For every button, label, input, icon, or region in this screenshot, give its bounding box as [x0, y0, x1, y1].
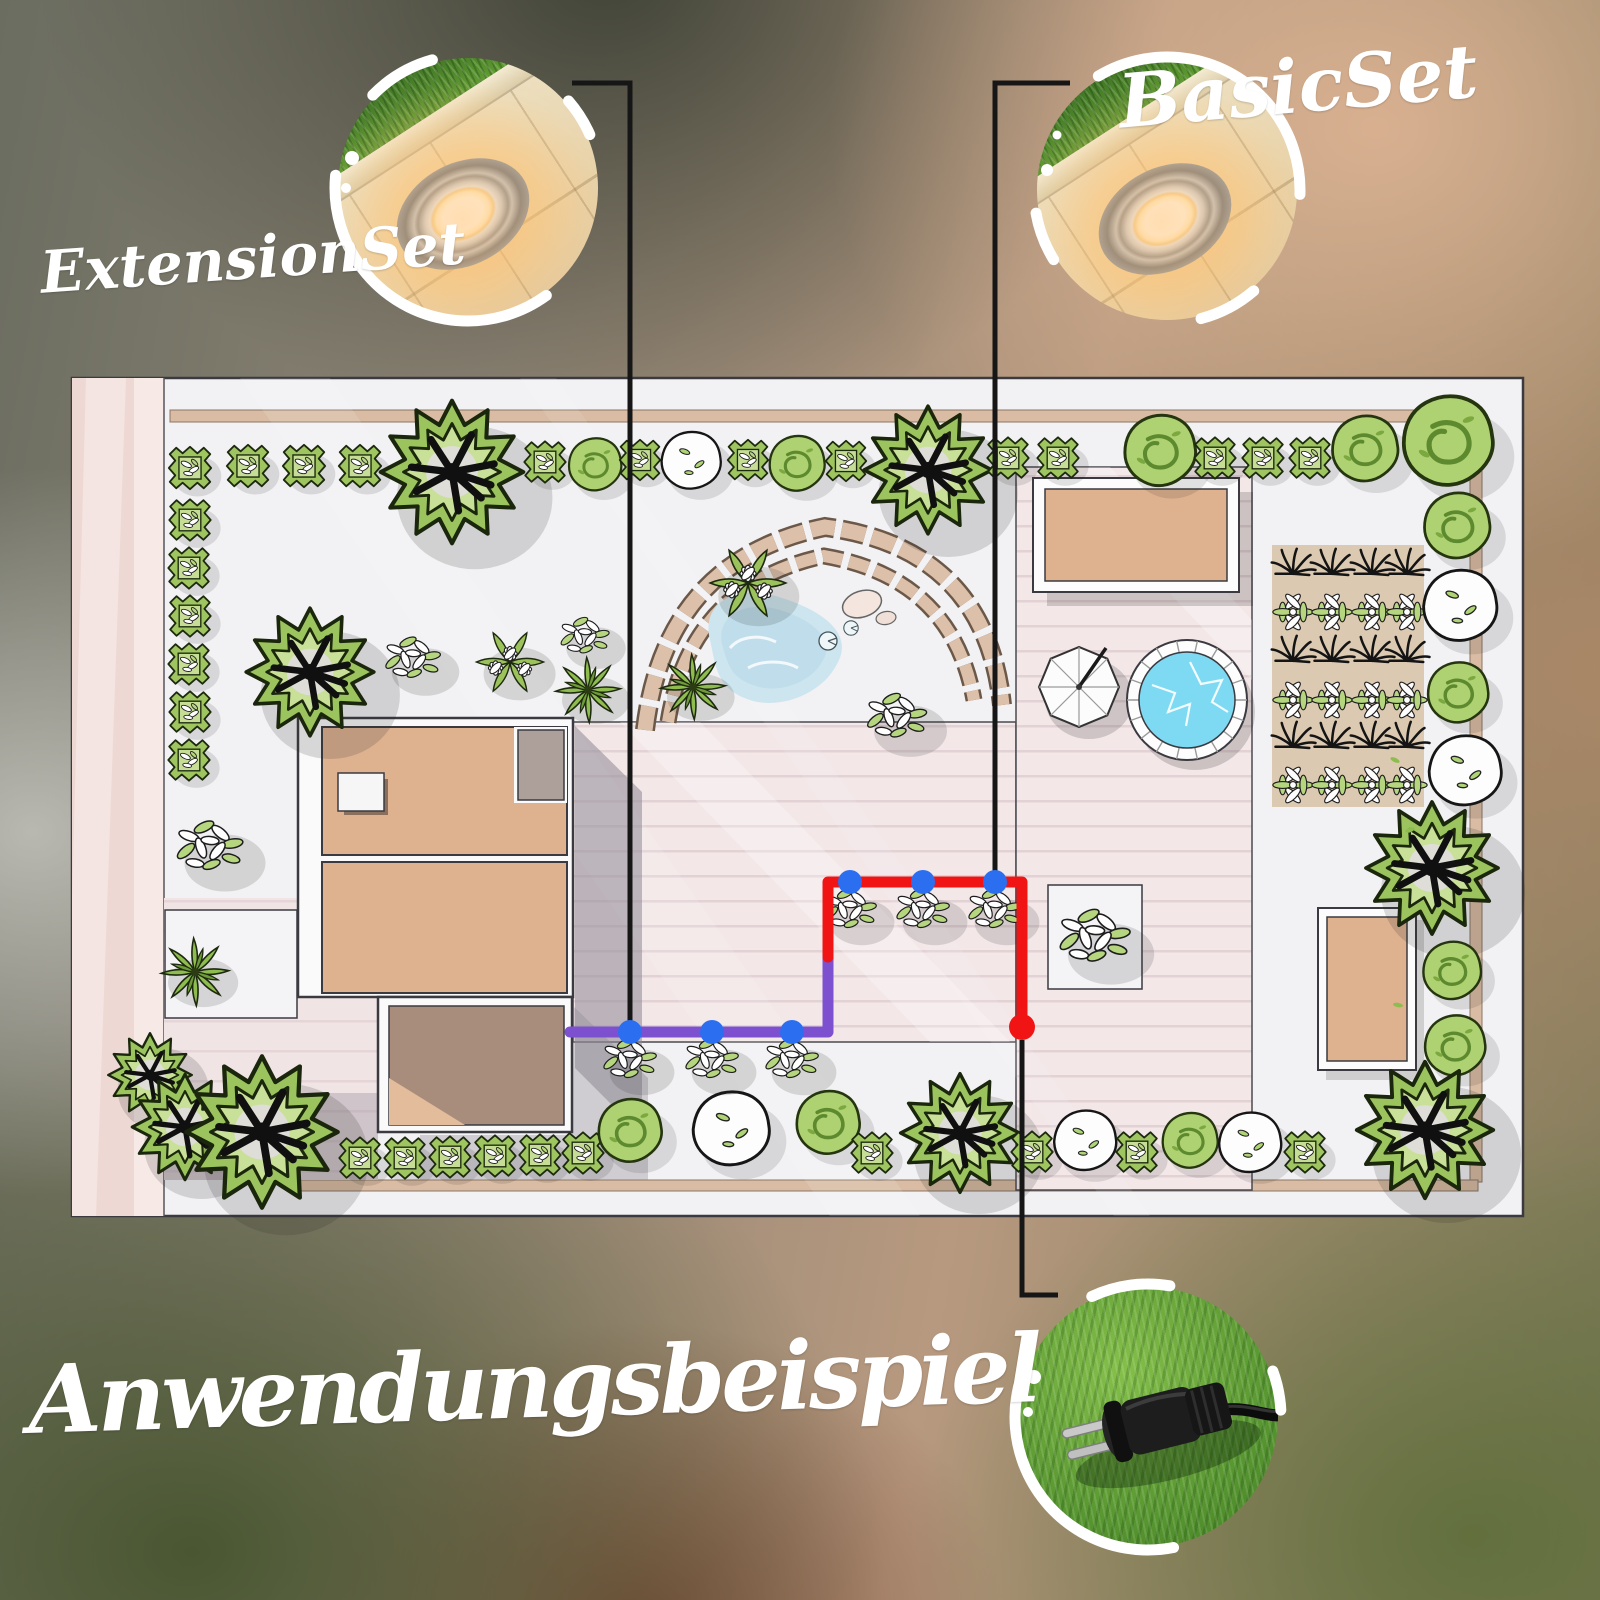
- garage: [378, 997, 572, 1132]
- extension-light-dot-3: [780, 1020, 804, 1044]
- plug-connection-dot: [1009, 1014, 1035, 1040]
- extension-light-dot-1: [618, 1020, 642, 1044]
- basic-light-dot-3: [983, 870, 1007, 894]
- plug-photo-inset: [1018, 1287, 1278, 1547]
- garden-table: [1033, 478, 1253, 606]
- extension-light-dot-2: [700, 1020, 724, 1044]
- house: [298, 718, 573, 997]
- basic-light-dot-1: [838, 870, 862, 894]
- basic-light-dot-2: [911, 870, 935, 894]
- application-example-graphic: ExtensionSet BasicSet Anwendungsbeispiel: [0, 0, 1600, 1600]
- power-plug-icon: [1018, 1287, 1278, 1547]
